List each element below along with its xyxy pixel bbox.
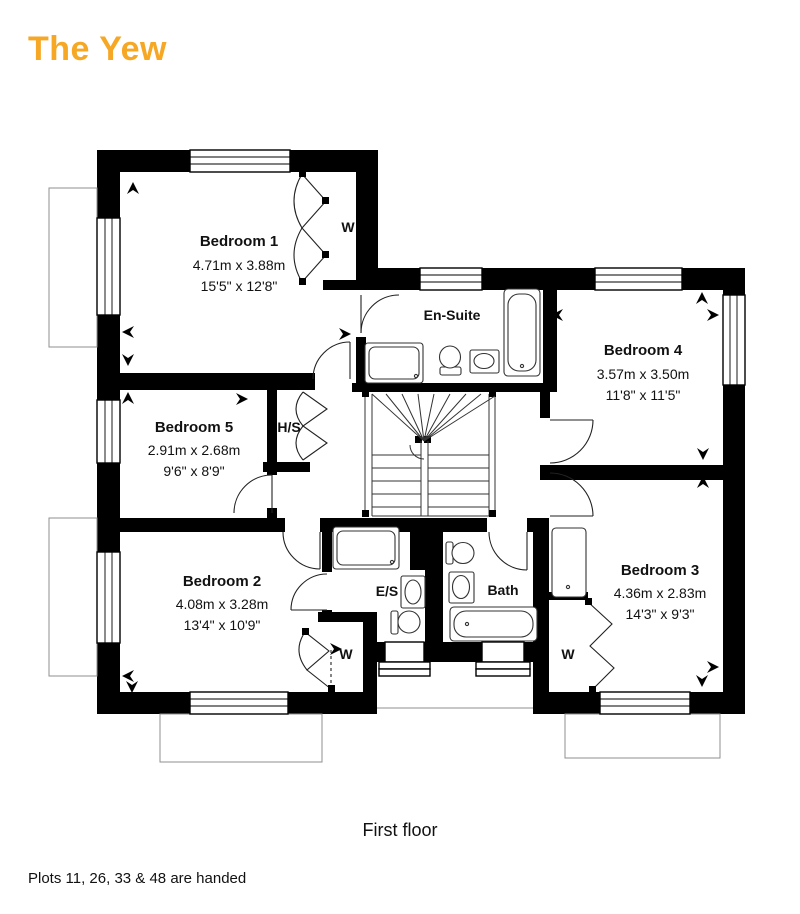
hs-label: H/S [277,419,300,435]
bed5-metric: 2.91m x 2.68m [148,442,241,458]
door-bed1 [313,342,350,379]
es-label: E/S [376,583,399,599]
bed3-imperial: 14'3" x 9'3" [626,606,695,622]
window-bath-bottom [476,642,530,676]
handed-plots-note: Plots 11, 26, 33 & 48 are handed [28,870,246,887]
bed1-name: Bedroom 1 [200,233,278,250]
bed4-metric: 3.57m x 3.50m [597,366,690,382]
bathtub-ensuite [504,289,540,376]
window-bed1-left [97,218,120,315]
window-bed2-bottom [190,692,288,714]
window-bed4-top [595,268,682,290]
wardrobe-label-bed2: W [339,646,353,662]
bed2-imperial: 13'4" x 10'9" [184,617,261,633]
door-bed5 [234,475,272,513]
door-bed4 [550,420,593,463]
page-title: The Yew [28,30,167,69]
bed4-imperial: 11'8" x 11'5" [606,387,681,403]
staircase [362,390,496,517]
window-es-bottom [379,642,430,676]
window-bed5-left [97,400,120,463]
window-bed2-left [97,552,120,643]
window-ensuite-top [420,268,482,290]
window-bed4-right [723,295,745,385]
bifold-w3 [585,598,614,693]
bifold-w2 [299,628,335,692]
wardrobe-label-bed3: W [561,646,575,662]
cupboard-bed3 [552,528,586,597]
basin-bath [449,572,474,603]
floorplan-page: The Yew [0,0,800,914]
bed3-metric: 4.36m x 2.83m [614,585,707,601]
shower-ensuite [365,343,423,383]
floor-caption: First floor [0,820,800,841]
window-bed1-top [190,150,290,172]
door-bath [489,532,527,570]
bed1-imperial: 15'5" x 12'8" [201,278,278,294]
bed1-metric: 4.71m x 3.88m [193,257,286,273]
wardrobe-label-bed1: W [341,219,355,235]
bed2-name: Bedroom 2 [183,573,261,590]
toilet-ensuite [440,346,462,375]
bed3-name: Bedroom 3 [621,562,699,579]
bed2-metric: 4.08m x 3.28m [176,596,269,612]
bathtub-bath [450,607,537,641]
ensuite-label: En-Suite [424,307,481,323]
door-ensuite [361,295,399,333]
bed4-name: Bedroom 4 [604,342,683,359]
toilet-bath [446,542,474,564]
door-es [291,574,327,610]
basin-ensuite [470,350,499,373]
bifold-w1 [294,170,329,285]
shower-es [333,527,399,569]
window-bed3-bottom [600,692,690,714]
floorplan-drawing: Bedroom 1 4.71m x 3.88m 15'5" x 12'8" Be… [0,0,800,914]
basin-es [401,576,425,608]
bath-label: Bath [487,582,518,598]
toilet-es [391,611,420,634]
door-bed2 [283,532,320,569]
bed5-imperial: 9'6" x 8'9" [163,463,224,479]
bed5-name: Bedroom 5 [155,419,233,436]
